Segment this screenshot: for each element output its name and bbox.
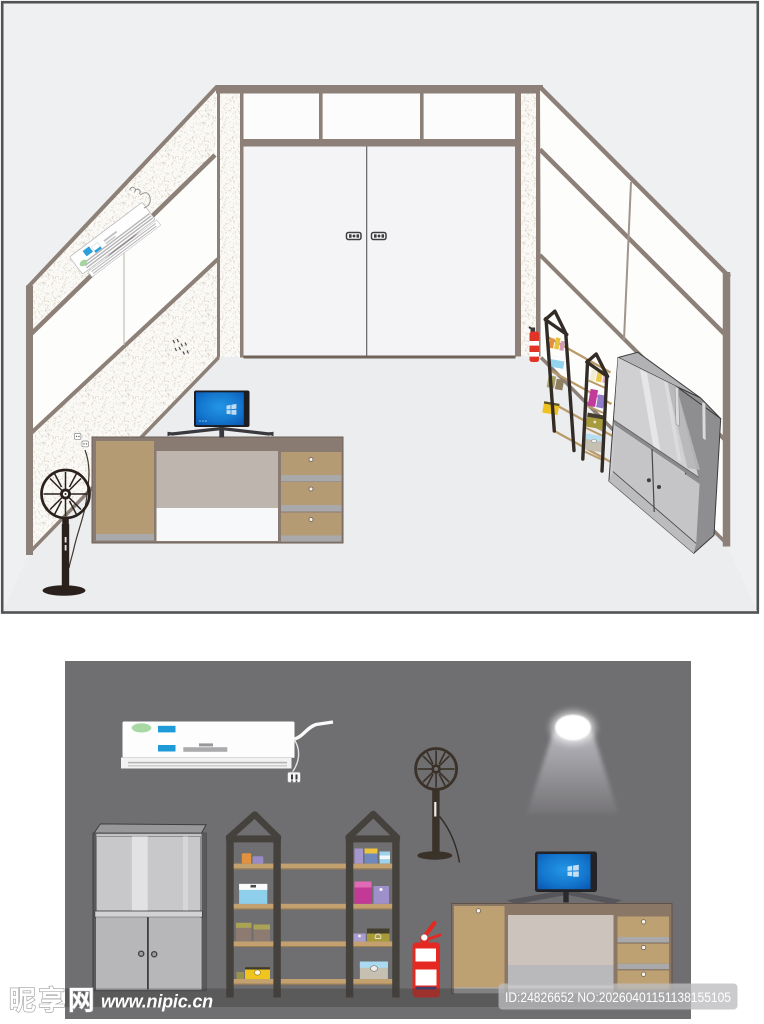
svg-text:昵享网: 昵享网 (9, 986, 98, 1016)
svg-text:ID:24826652 NO:202604011511381: ID:24826652 NO:20260401151138155105 (505, 990, 731, 1005)
svg-text:www.nipic.cn: www.nipic.cn (101, 992, 213, 1012)
